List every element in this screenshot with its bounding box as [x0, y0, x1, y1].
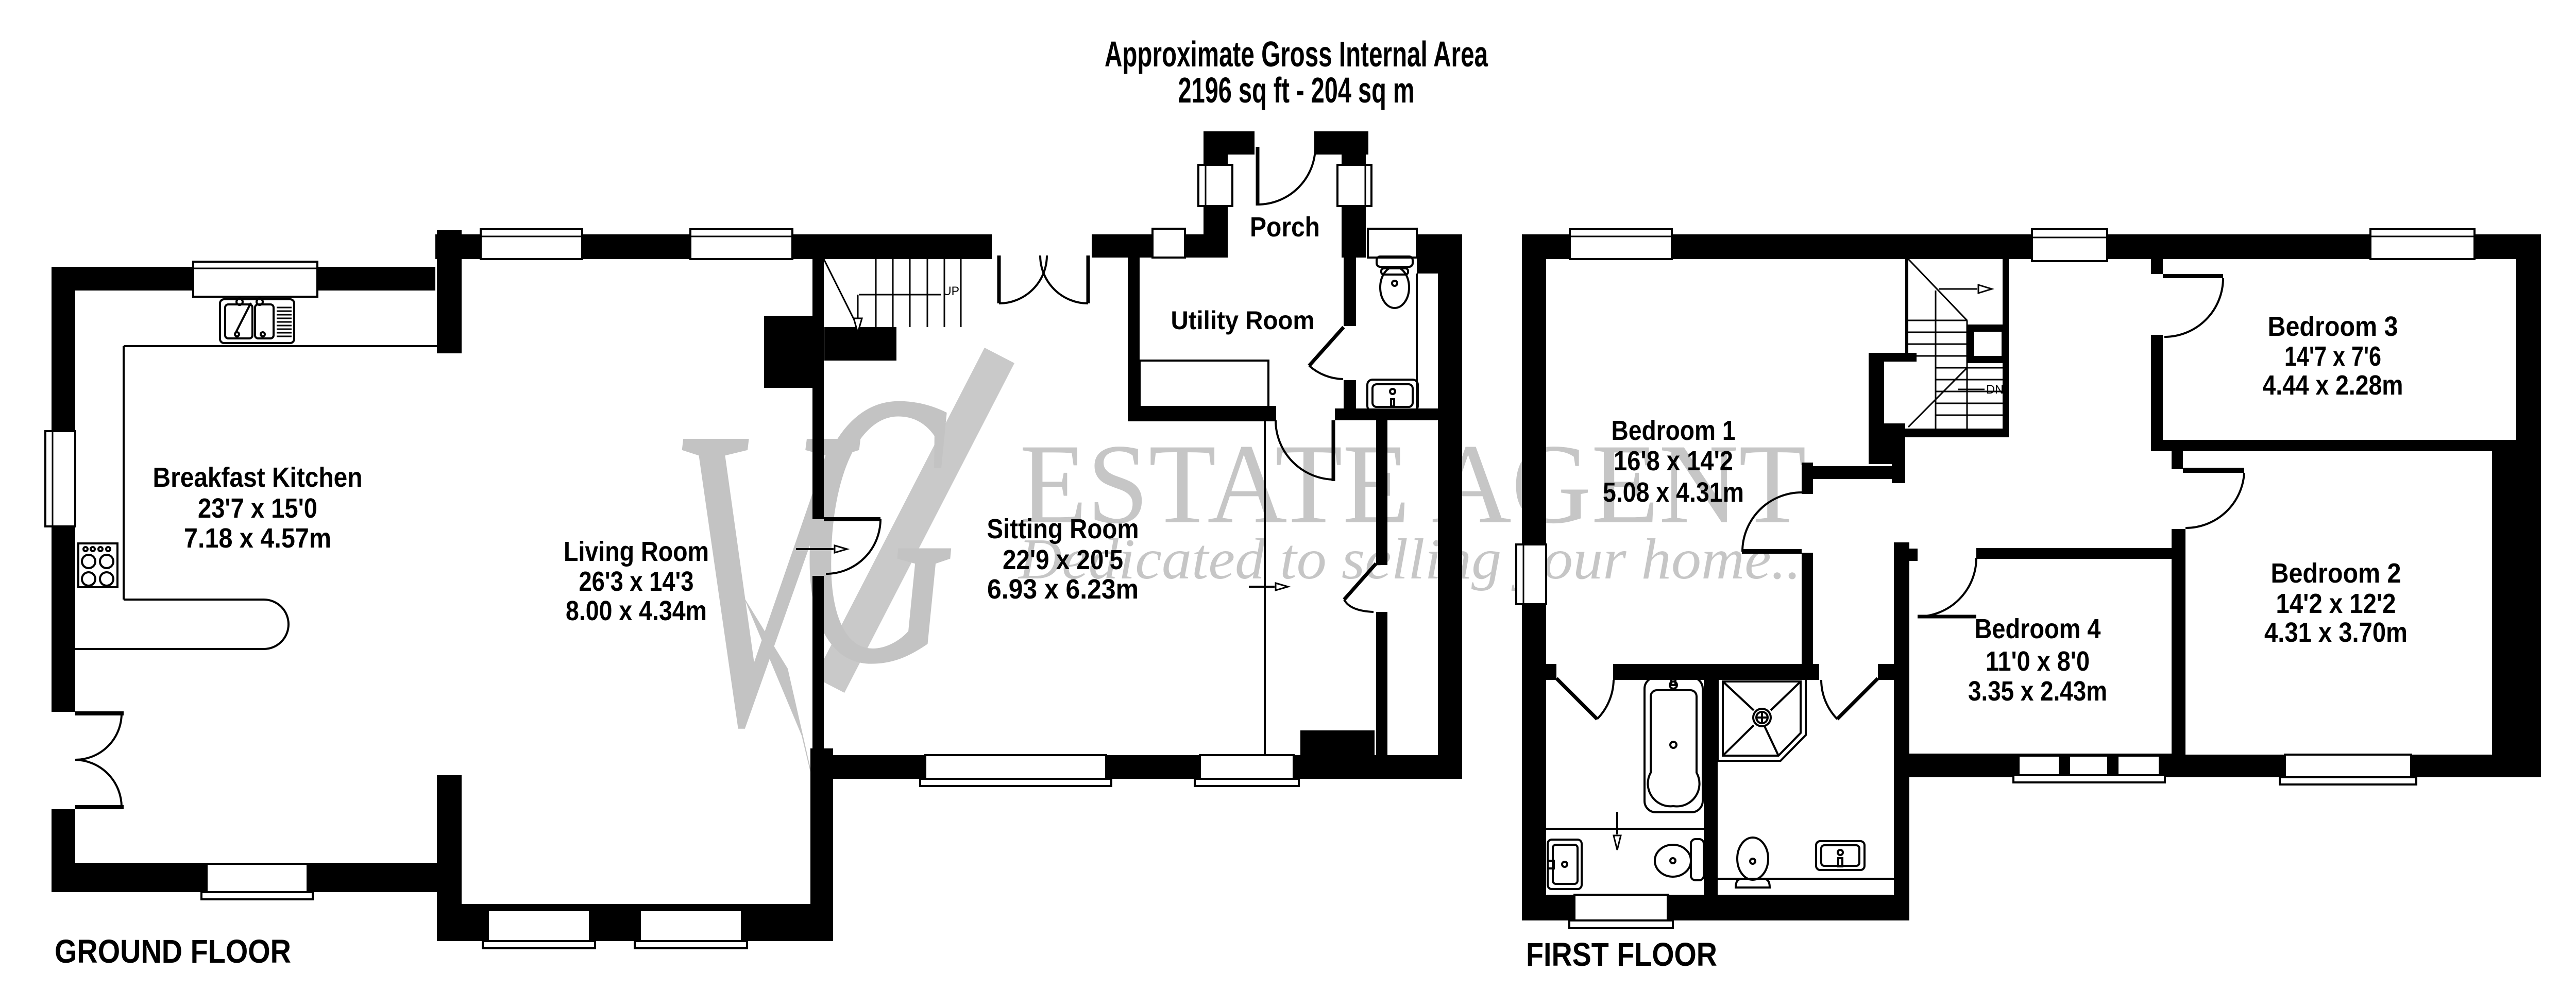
svg-text:UP: UP [943, 284, 959, 298]
svg-text:DN: DN [1986, 383, 2004, 397]
svg-text:11'0 x 8'0: 11'0 x 8'0 [1986, 646, 2090, 677]
svg-text:2196 sq ft - 204 sq m: 2196 sq ft - 204 sq m [1178, 70, 1415, 110]
svg-text:Porch: Porch [1250, 212, 1320, 243]
svg-text:GROUND FLOOR: GROUND FLOOR [55, 933, 291, 970]
svg-text:Bedroom 1: Bedroom 1 [1612, 415, 1736, 446]
svg-text:8.00 x 4.34m: 8.00 x 4.34m [566, 595, 707, 626]
svg-text:7.18 x 4.57m: 7.18 x 4.57m [184, 523, 331, 554]
svg-text:22'9 x 20'5: 22'9 x 20'5 [1003, 544, 1123, 575]
svg-text:3.35 x 2.43m: 3.35 x 2.43m [1968, 676, 2107, 707]
svg-text:14'7 x 7'6: 14'7 x 7'6 [2284, 341, 2381, 372]
svg-text:Bedroom 2: Bedroom 2 [2271, 558, 2401, 589]
svg-text:14'2 x 12'2: 14'2 x 12'2 [2276, 588, 2396, 619]
svg-text:Bedroom 4: Bedroom 4 [1975, 613, 2101, 644]
svg-text:26'3 x 14'3: 26'3 x 14'3 [579, 566, 694, 597]
svg-text:16'8 x 14'2: 16'8 x 14'2 [1614, 446, 1733, 476]
svg-text:Breakfast Kitchen: Breakfast Kitchen [153, 462, 363, 493]
svg-text:6.93 x 6.23m: 6.93 x 6.23m [987, 574, 1139, 605]
svg-text:Living Room: Living Room [564, 536, 709, 567]
svg-text:Bedroom 3: Bedroom 3 [2268, 311, 2398, 342]
svg-text:FIRST FLOOR: FIRST FLOOR [1526, 936, 1717, 973]
svg-text:Utility Room: Utility Room [1171, 306, 1315, 335]
svg-text:4.44 x 2.28m: 4.44 x 2.28m [2263, 370, 2403, 401]
svg-text:23'7 x 15'0: 23'7 x 15'0 [198, 493, 317, 524]
svg-text:5.08 x 4.31m: 5.08 x 4.31m [1603, 477, 1744, 508]
svg-text:Sitting Room: Sitting Room [987, 514, 1139, 544]
svg-text:Approximate Gross Internal Are: Approximate Gross Internal Area [1105, 34, 1488, 74]
svg-text:4.31 x 3.70m: 4.31 x 3.70m [2264, 617, 2408, 648]
